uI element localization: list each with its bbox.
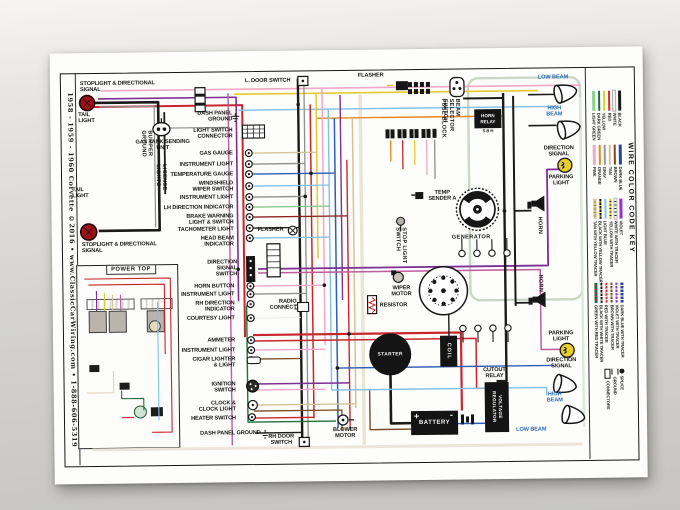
key-group-3: VIOLET WHITE WITH TRACER YELLOW WITH TRA… — [592, 199, 624, 283]
wire-color-swatch — [603, 91, 606, 111]
power-top-connector-strip — [141, 298, 173, 309]
battery-plus: + — [414, 412, 419, 422]
label-dash-panel-ground-bottom: DASH PANEL GROUND — [200, 430, 261, 437]
battery-minus: - — [450, 411, 453, 421]
key-group-2: DARK BLUE BROWN TAN GRAY ORANGE PINK — [592, 145, 624, 191]
horn-relay-terminals: S B H — [471, 129, 504, 134]
label-clock: CLOCK & CLOCK LIGHT — [196, 400, 236, 413]
label-instrument-light-2: INSTRUMENT LIGHT — [153, 194, 233, 201]
label-ignition-switch: IGNITION SWITCH — [202, 381, 236, 394]
label-rh-direction-indicator: RH DIRECTION INDICATOR — [187, 300, 235, 313]
label-direction-signal-top: DIRECTION SIGNAL — [541, 145, 577, 158]
power-top-relay — [89, 311, 107, 333]
wire-color-swatch — [592, 91, 595, 111]
label-generator: GENERATOR — [452, 234, 491, 241]
key-title: WIRE COLOR CODE KEY — [627, 142, 635, 253]
label-direction-signal-switch: DIRECTION SIGNAL SWITCH — [197, 259, 237, 278]
label-beam-selector-switch: BEAM SELECTOR SWITCH — [447, 99, 461, 151]
wire-color-swatch — [619, 145, 622, 165]
label-low-beam-bottom: LOW BEAM — [516, 426, 546, 433]
power-top-title: POWER TOP — [106, 264, 156, 275]
label-low-beam-top: LOW BEAM — [538, 74, 568, 81]
wire-color-swatch — [613, 91, 616, 111]
label-stoplight-directional-top: STOPLIGHT & DIRECTIONAL SIGNAL — [80, 80, 176, 93]
label-head-beam-indicator: HEAD BEAM INDICATOR — [192, 235, 234, 248]
label-radio-connect: RADIO CONNECT — [265, 299, 297, 312]
power-top-relay — [109, 311, 127, 333]
label-resistor: RESISTOR — [380, 302, 408, 308]
connector-symbol — [605, 369, 611, 379]
wire-color-swatch — [621, 283, 624, 303]
poster-scene: 1958 - 1959 - 1960 Corvette ©2016 • www.… — [0, 0, 680, 510]
label-horn-button: HORN BUTTON — [154, 283, 234, 290]
key-symbols: SPLICE GROUND CONNECTORS — [604, 369, 625, 410]
wire-color-swatch — [604, 199, 607, 219]
wire-color-swatch — [598, 145, 601, 165]
wire-color-swatch — [614, 145, 617, 165]
label-rh-door-switch: RH DOOR SWITCH — [264, 434, 298, 447]
label-horn-1: HORN — [534, 217, 543, 243]
label-high-beam-top: HIGH BEAM — [542, 105, 566, 118]
poster-photo: 1958 - 1959 - 1960 Corvette ©2016 • www.… — [0, 0, 680, 510]
wire-color-swatch — [600, 283, 603, 303]
label-lh-direction-indicator: LH DIRECTION INDICATOR — [143, 204, 233, 211]
label-high-beam-bottom: HIGH BEAM — [543, 391, 567, 404]
label-l-door-switch: L. DOOR SWITCH — [245, 78, 291, 85]
power-top-switch — [89, 365, 99, 372]
label-light-switch-connector: LIGHT SWITCH CONNECTOR — [180, 127, 232, 140]
label-courtesy-light: COURTESY LIGHT — [155, 315, 235, 322]
wire-color-swatch — [614, 199, 617, 219]
voltage-regulator-box: VOLTAGE REGULATOR — [485, 382, 510, 432]
wire-color-swatch — [609, 199, 612, 219]
label-wiper-motor: WIPER MOTOR — [386, 285, 416, 298]
ground-symbol-key — [611, 369, 618, 375]
label-dash-panel-ground-top: DASH PANEL GROUND — [176, 110, 232, 123]
label-parking-light-top: PARKING LIGHT — [545, 174, 577, 187]
wire-color-swatch — [595, 283, 598, 303]
wire-color-swatch — [605, 283, 608, 303]
label-tail-light-top: TAIL LIGHT — [78, 112, 100, 125]
label-flasher-mid: FLASHER — [258, 227, 284, 233]
horn-relay-box: HORN RELAY — [474, 109, 501, 128]
label-gas-tank-sending-unit: GAS TANK SENDING UNIT — [135, 139, 191, 152]
wire-color-swatch — [608, 91, 611, 111]
label-instrument-light-4: INSTRUMENT LIGHT — [155, 347, 235, 354]
label-gas-gauge: GAS GAUGE — [153, 150, 233, 157]
label-ammeter: AMMETER — [155, 337, 235, 344]
wire-color-swatch — [609, 145, 612, 165]
label-instrument-light-1: INSTRUMENT LIGHT — [153, 161, 233, 168]
power-top-pump — [134, 405, 147, 418]
wire-color-swatch — [599, 199, 602, 219]
wire-color-swatch — [618, 91, 621, 111]
label-windshield-wiper-switch: WINDSHIELD WIPER SWITCH — [183, 180, 233, 193]
label-cigar-lighter: CIGAR LIGHTER & LIGHT — [187, 356, 235, 369]
label-brake-warning: BRAKE WARNING LIGHT & SWITCH — [169, 213, 233, 226]
splice-symbol — [619, 369, 624, 374]
power-top-connector-strip — [87, 299, 135, 311]
label-instrument-light-3: INSTRUMENT LIGHT — [154, 291, 234, 298]
label-tachometer-light: TACHOMETER LIGHT — [154, 226, 234, 233]
label-parking-light-bottom: PARKING LIGHT — [545, 330, 577, 343]
wire-color-swatch — [594, 199, 597, 219]
wire-color-swatch — [620, 199, 623, 219]
label-temp-sender: TEMP SENDER A — [425, 190, 459, 203]
label-horn-2: HORN — [534, 275, 543, 301]
wire-color-swatch — [598, 91, 601, 111]
key-group-1: BLACK WHITE RED YELLOW DARK GREEN LIGHT … — [591, 91, 623, 141]
wire-color-code-key: WIRE COLOR CODE KEY BLACK WHITE RED YELL… — [589, 90, 635, 438]
wire-color-swatch — [615, 283, 618, 303]
label-cutout-relay: CUTOUT RELAY — [479, 367, 509, 380]
label-bumper-ground: BUMPER GROUND — [139, 130, 153, 176]
power-top-switch — [120, 383, 130, 390]
power-top-grommet — [151, 407, 163, 416]
coil-box: COIL — [440, 336, 457, 367]
label-heater-switch: HEATER SWITCH — [156, 415, 236, 422]
key-group-4: DARK BLUE WITH TRACER VIOLET WITH TRACER… — [593, 283, 625, 363]
label-blower-motor: BLOWER MOTOR — [330, 427, 360, 440]
label-temperature-gauge: TEMPERATURE GAUGE — [153, 171, 233, 178]
wire-color-swatch — [610, 283, 613, 303]
wire-color-swatch — [593, 145, 596, 165]
label-flasher-top: FLASHER — [358, 72, 384, 78]
label-direction-signal-bottom: DIRECTION SIGNAL — [543, 357, 579, 370]
label-stoplight-directional-bottom: STOPLIGHT & DIRECTIONAL SIGNAL — [82, 241, 162, 254]
wire-color-swatch — [603, 145, 606, 165]
label-stop-light-switch: STOP LIGHT SWITCH — [394, 227, 408, 269]
label-tail-light-bottom: TAIL LIGHT — [72, 187, 94, 200]
